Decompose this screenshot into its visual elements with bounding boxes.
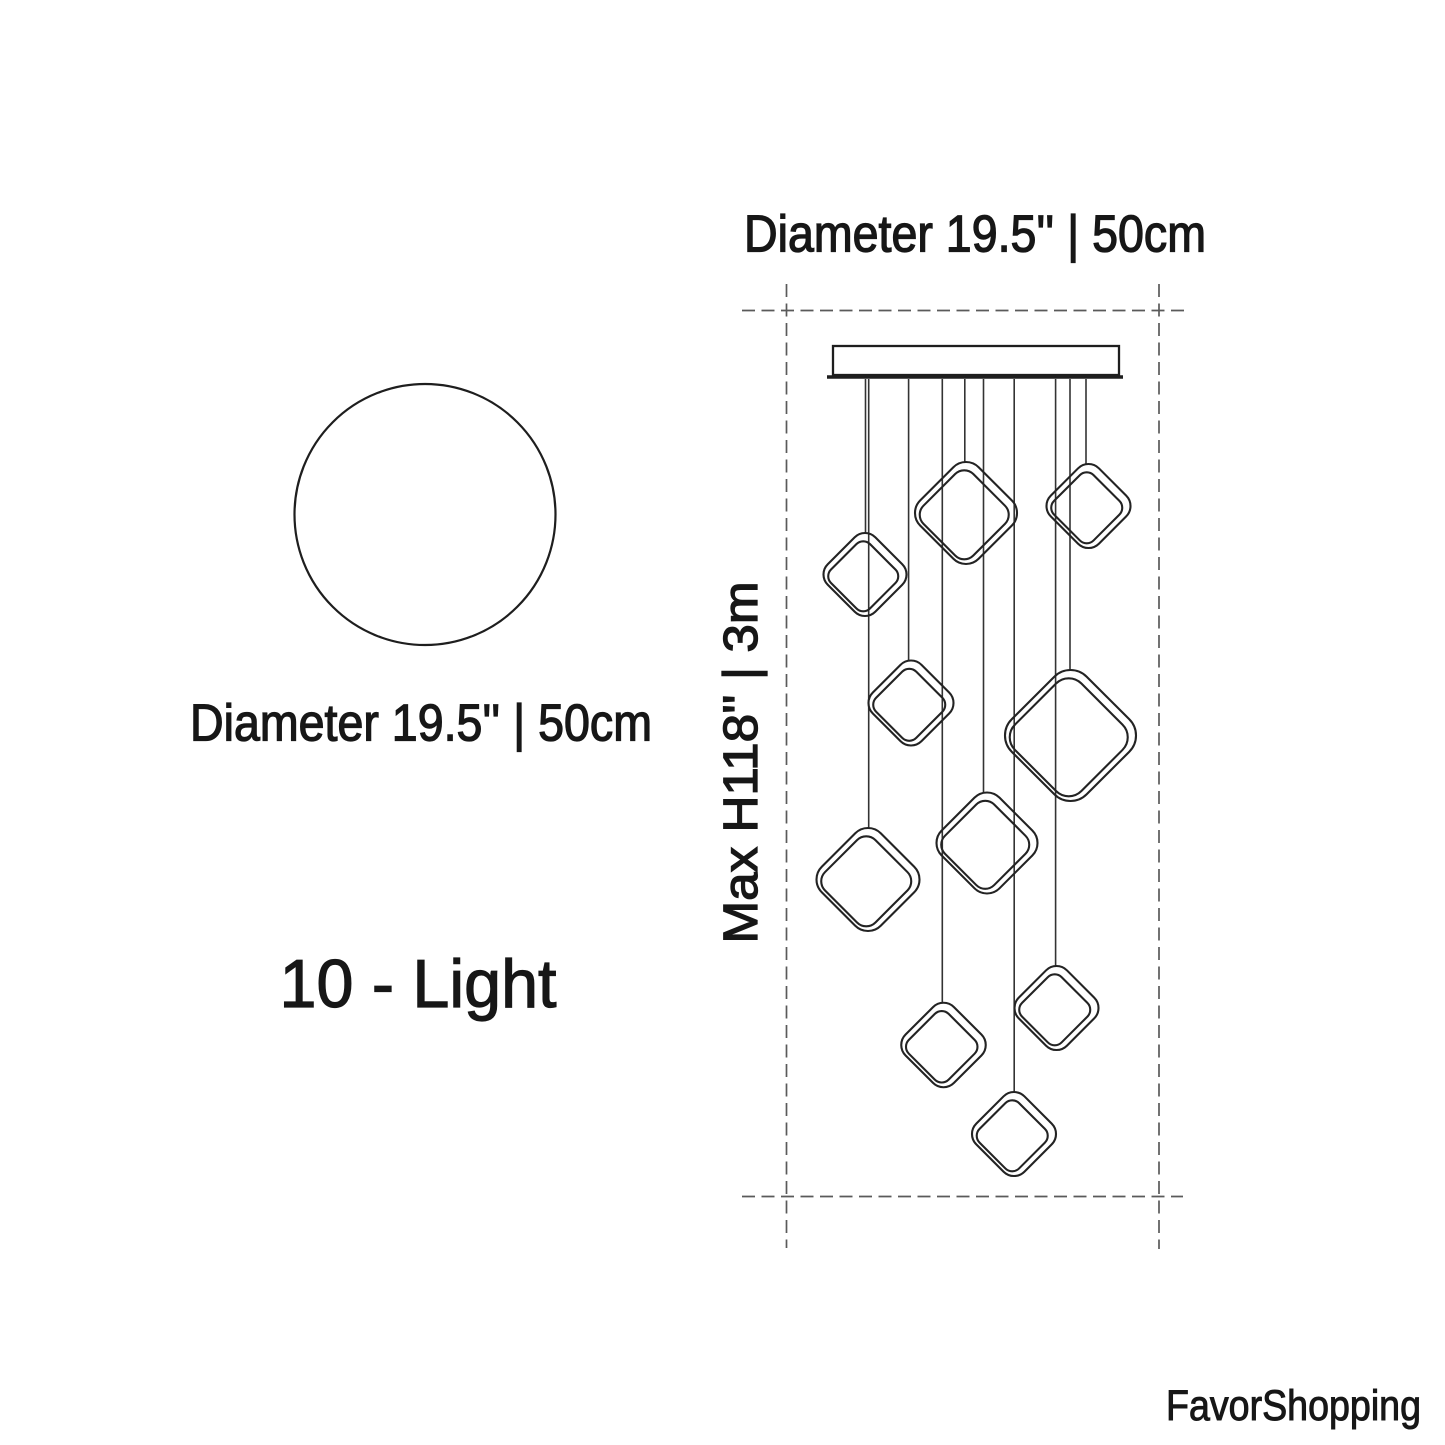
svg-text:Diameter 19.5'' | 50cm: Diameter 19.5'' | 50cm: [744, 205, 1206, 263]
svg-text:10 - Light: 10 - Light: [280, 947, 557, 1022]
svg-text:Diameter 19.5'' | 50cm: Diameter 19.5'' | 50cm: [190, 693, 652, 751]
svg-text:FavorShopping: FavorShopping: [1166, 1382, 1421, 1430]
svg-text:Max H118'' | 3m: Max H118'' | 3m: [714, 582, 768, 944]
